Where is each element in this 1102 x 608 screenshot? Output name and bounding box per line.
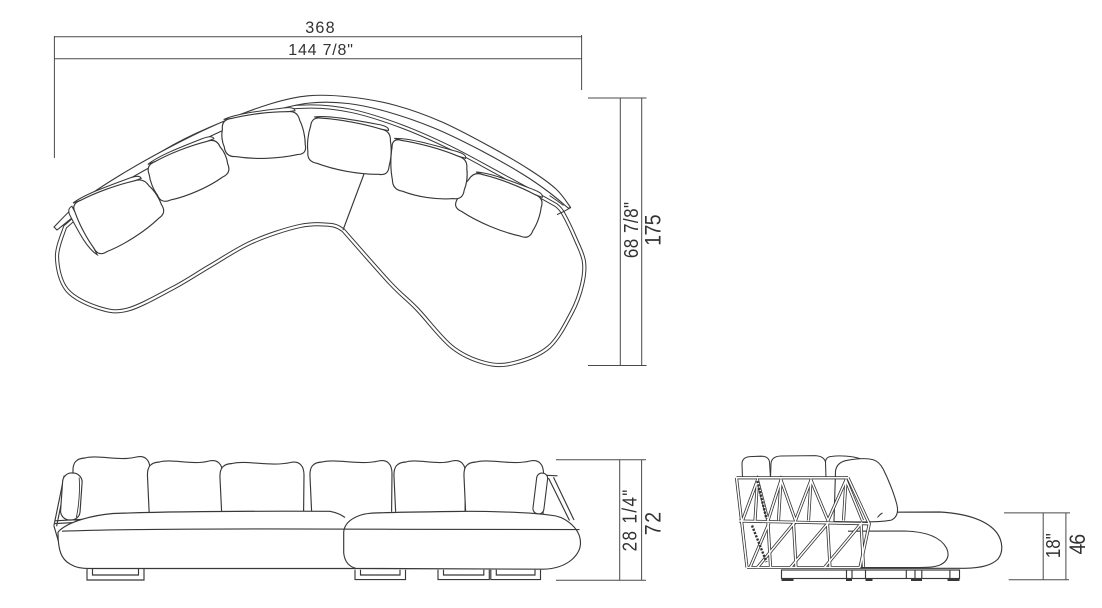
svg-text:46: 46 xyxy=(1066,535,1091,555)
svg-text:144 7/8": 144 7/8" xyxy=(288,42,353,59)
svg-text:18": 18" xyxy=(1042,533,1065,558)
svg-text:368: 368 xyxy=(305,19,336,37)
svg-text:28 1/4": 28 1/4" xyxy=(618,488,641,551)
svg-text:175: 175 xyxy=(641,215,666,246)
svg-text:72: 72 xyxy=(641,510,666,535)
svg-text:68 7/8": 68 7/8" xyxy=(620,201,643,258)
